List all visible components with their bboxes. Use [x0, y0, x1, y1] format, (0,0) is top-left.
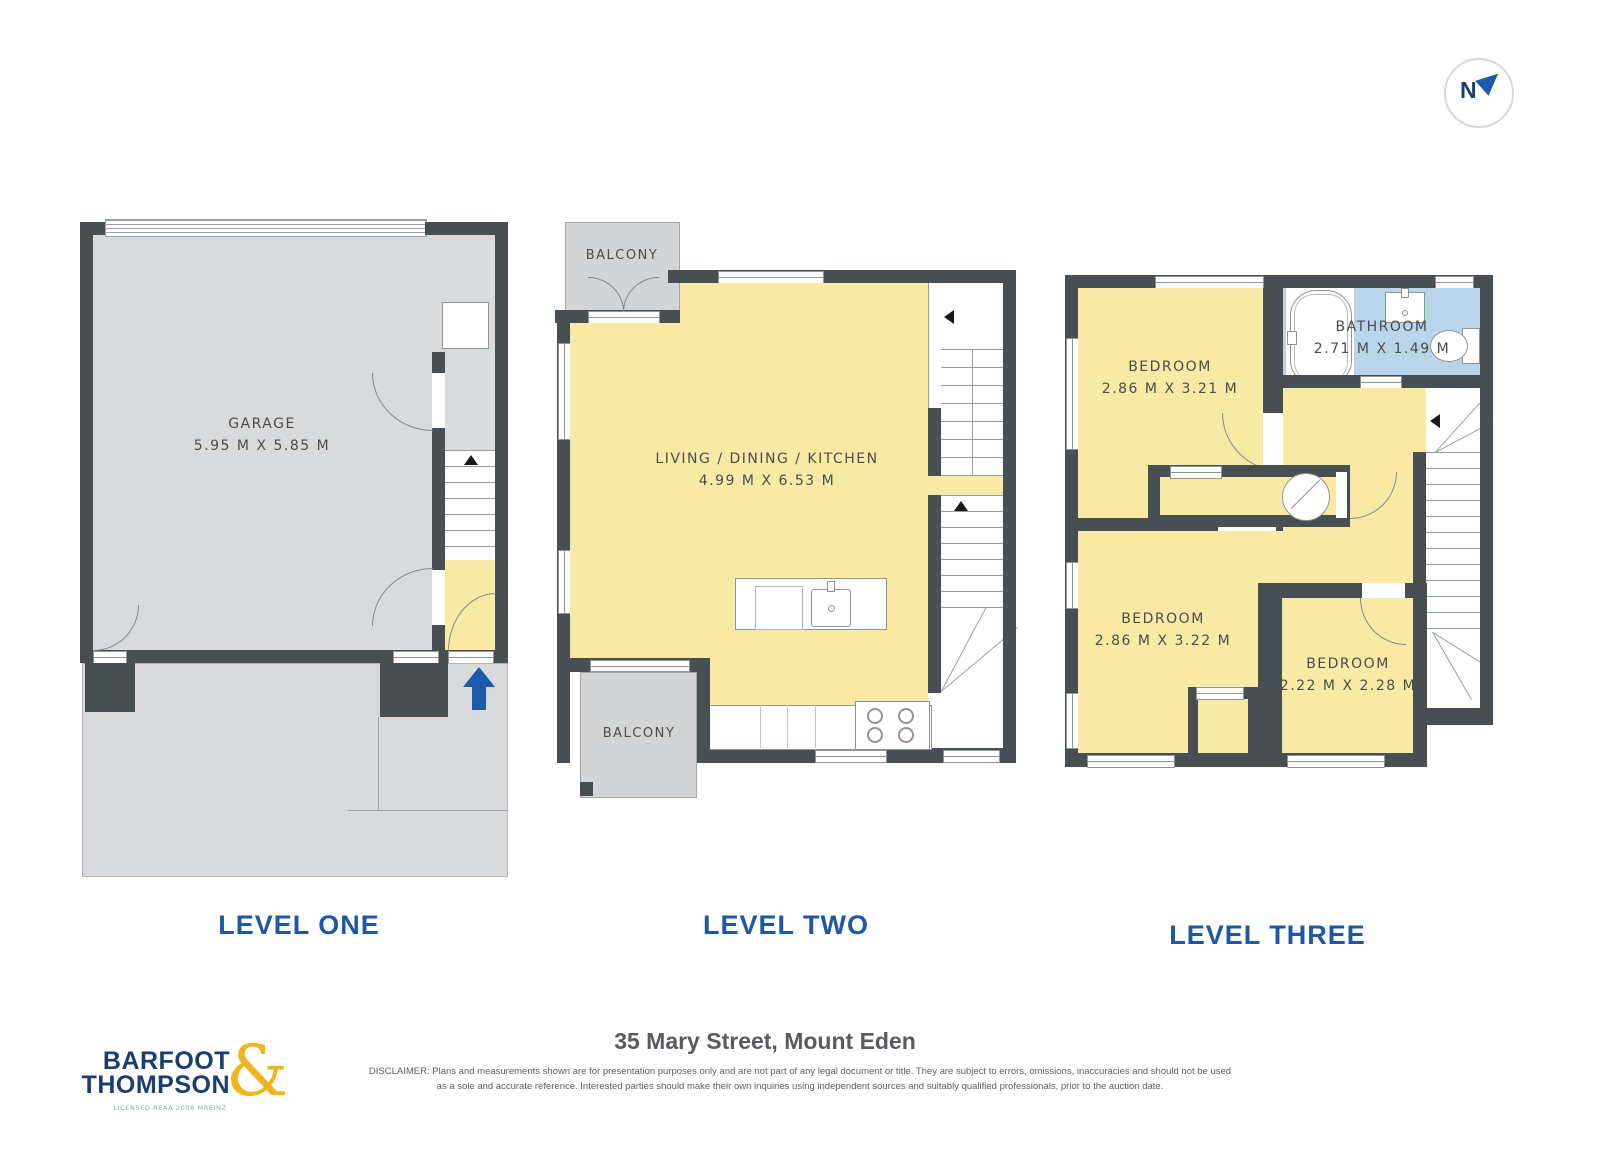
brand-line-2: THOMPSON — [58, 1074, 230, 1098]
counter-divider — [815, 705, 816, 748]
garage-door — [105, 219, 427, 237]
drain-icon — [828, 605, 835, 612]
bedroom3-label: BEDROOM 2.22 M X 2.28 M — [1258, 653, 1438, 698]
door-opening — [432, 373, 445, 428]
burner-icon — [867, 708, 883, 724]
door-opening — [1170, 466, 1222, 479]
room-dims: 2.86 M X 3.22 M — [1073, 630, 1253, 652]
door-opening — [1336, 472, 1347, 518]
door-opening — [1196, 687, 1244, 700]
level-two-title: LEVEL TWO — [555, 910, 1017, 941]
room-name: LIVING / DINING / KITCHEN — [647, 448, 887, 470]
wall — [1003, 270, 1016, 763]
cylinder-mark — [1291, 480, 1320, 509]
bedroom2-label: BEDROOM 2.86 M X 3.22 M — [1073, 608, 1253, 653]
disclaimer: DISCLAIMER: Plans and measurements shown… — [320, 1064, 1280, 1094]
door-opening — [432, 570, 445, 625]
stairs — [941, 495, 1003, 608]
wall — [1413, 452, 1426, 598]
burner-icon — [867, 727, 883, 743]
bedroom1-label: BEDROOM 2.86 M X 3.21 M — [1080, 356, 1260, 401]
stairs-up-arrow-icon — [464, 455, 478, 465]
compass-north-label: N — [1460, 77, 1477, 104]
room-name: BATHROOM — [1292, 316, 1472, 338]
wall — [928, 408, 941, 693]
floorplan-level-one: GARAGE 5.95 M X 5.85 M — [80, 215, 518, 892]
floorplan-level-two: BALCONY — [555, 218, 1017, 800]
wall — [380, 663, 448, 717]
entry-arrow-icon — [463, 667, 495, 710]
stove — [855, 701, 930, 750]
kitchen-island — [735, 578, 887, 630]
window — [1087, 755, 1175, 768]
garage-label: GARAGE 5.95 M X 5.85 M — [162, 413, 362, 458]
floorplan-level-three: BATHROOM 2.71 M X 1.49 M B — [1040, 268, 1495, 773]
wall — [1065, 275, 1493, 288]
room-dims: 2.22 M X 2.28 M — [1258, 675, 1438, 697]
burner-icon — [898, 727, 914, 743]
wall — [1263, 288, 1283, 413]
storage-niche — [442, 302, 489, 349]
stairs — [1426, 452, 1480, 632]
floorplan-flyer: N GARAGE 5.95 — [0, 0, 1600, 1167]
door-opening — [1362, 583, 1405, 598]
entry-arrow-stem — [472, 687, 486, 710]
wall — [80, 222, 93, 663]
balcony-top-label: BALCONY — [567, 246, 677, 267]
wall — [495, 222, 508, 663]
room-dims: 2.86 M X 3.21 M — [1080, 378, 1260, 400]
stair-edge — [928, 283, 929, 408]
stair-winder — [941, 608, 1003, 693]
stairs-up-arrow-icon — [954, 501, 968, 511]
room-name: BEDROOM — [1080, 356, 1260, 378]
wall — [697, 658, 710, 763]
counter-divider — [787, 705, 788, 748]
room-name: BALCONY — [584, 724, 694, 745]
window — [943, 750, 1000, 763]
level-one-title: LEVEL ONE — [80, 910, 518, 941]
room-dims: 2.71 M X 1.49 M — [1292, 338, 1472, 360]
room-dims: 5.95 M X 5.85 M — [162, 435, 362, 457]
property-address: 35 Mary Street, Mount Eden — [435, 1028, 1095, 1055]
compass: N — [1444, 58, 1514, 128]
living-floor — [680, 283, 928, 748]
hot-water-cylinder — [1282, 473, 1330, 521]
entry-arrow-head — [463, 667, 495, 687]
stairs-direction-arrow-icon — [944, 310, 954, 324]
brand-logo: BARFOOT THOMPSON — [58, 1050, 230, 1098]
level-three-title: LEVEL THREE — [1040, 920, 1495, 951]
wall — [85, 663, 135, 712]
window — [1287, 755, 1385, 768]
living-label: LIVING / DINING / KITCHEN 4.99 M X 6.53 … — [647, 448, 887, 493]
wall — [580, 782, 593, 796]
stairs — [445, 450, 495, 560]
north-arrow-icon — [1475, 66, 1505, 96]
outdoor-divider — [378, 717, 379, 810]
faucet-icon — [1401, 288, 1409, 298]
disclaimer-line-2: as a sole and accurate reference. Intere… — [320, 1079, 1280, 1094]
counter-divider — [760, 705, 761, 748]
wall — [80, 650, 508, 663]
closet-floor — [1198, 699, 1248, 753]
room-name: BEDROOM — [1073, 608, 1253, 630]
stairs-direction-arrow-icon — [1430, 414, 1440, 428]
room-name: GARAGE — [162, 413, 362, 435]
wall — [1427, 708, 1493, 725]
faucet-icon — [827, 581, 835, 592]
balcony-bottom-label: BALCONY — [584, 724, 694, 745]
burner-icon — [898, 708, 914, 724]
disclaimer-line-1: DISCLAIMER: Plans and measurements shown… — [320, 1064, 1280, 1079]
stair-landing — [928, 476, 1003, 495]
brand-ampersand: & — [226, 1036, 288, 1106]
room-name: BALCONY — [567, 246, 677, 267]
room-dims: 4.99 M X 6.53 M — [647, 470, 887, 492]
wall — [1480, 275, 1493, 725]
window — [815, 750, 887, 763]
island-cooktop — [755, 586, 803, 630]
bathroom-label: BATHROOM 2.71 M X 1.49 M — [1292, 316, 1472, 361]
outdoor-divider — [348, 810, 508, 811]
sliding-door — [590, 660, 690, 672]
brand-license: LICENSED REAA 2008 MREINZ — [100, 1104, 240, 1112]
room-name: BEDROOM — [1258, 653, 1438, 675]
stair-rail — [972, 349, 973, 476]
